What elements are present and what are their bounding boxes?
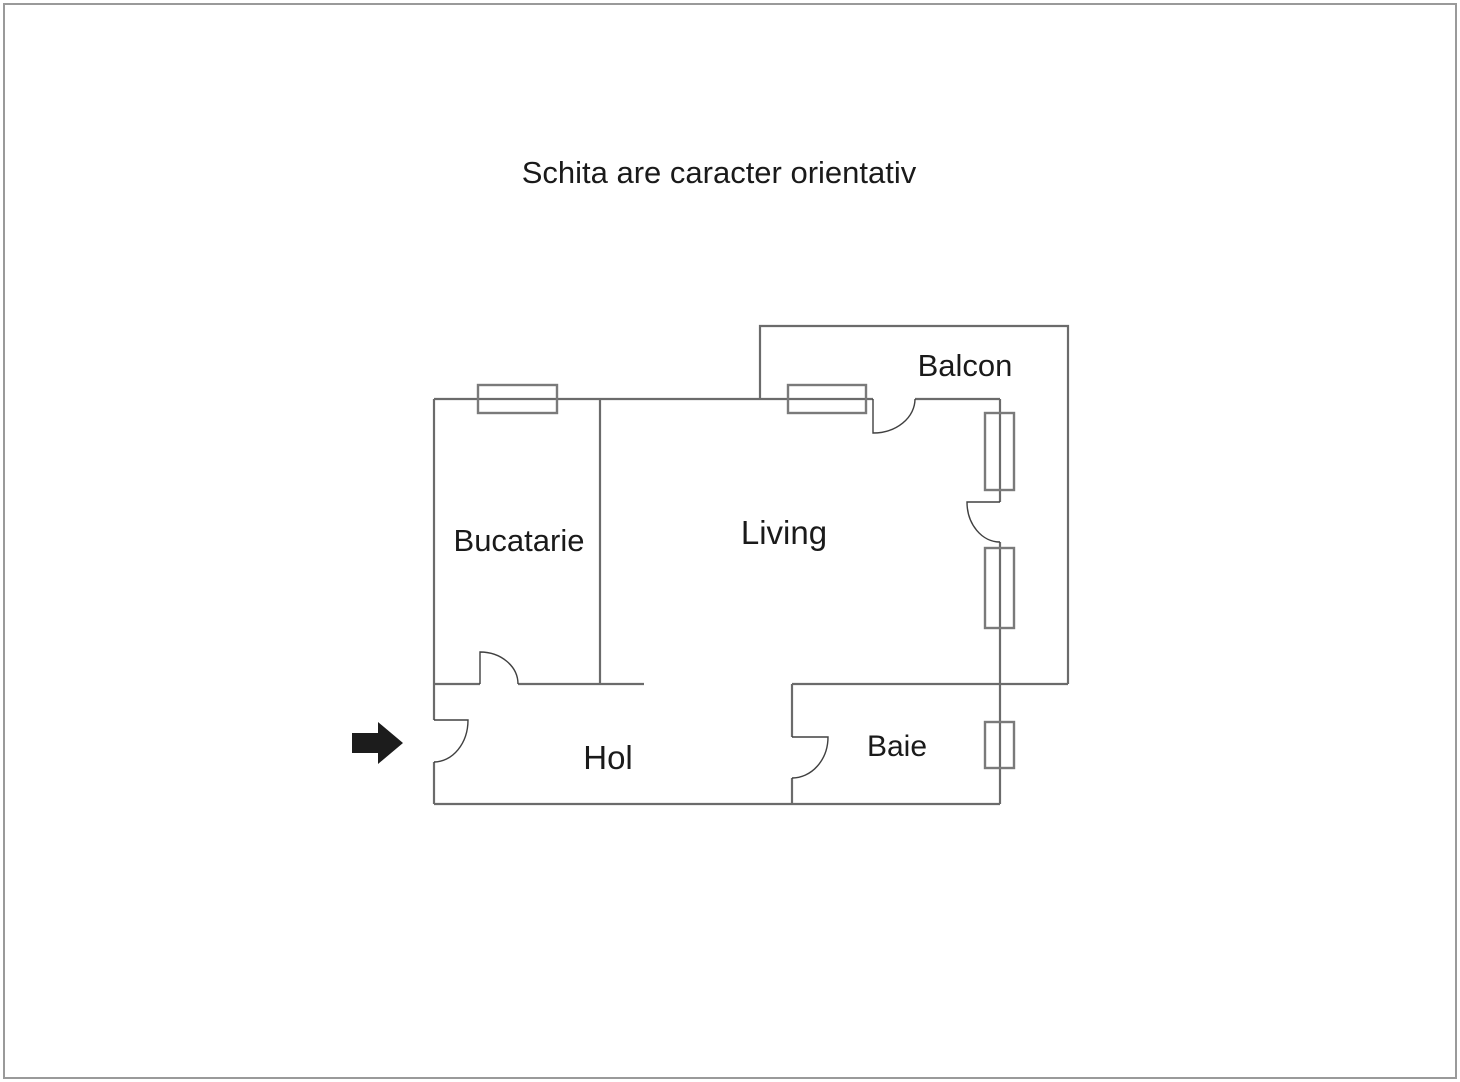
room-label-bucatarie: Bucatarie (454, 523, 585, 558)
living-right-upper-window-icon (985, 413, 1014, 490)
window-symbols (478, 385, 1014, 768)
living-top-window-icon (788, 385, 866, 413)
balcony-door-arc (873, 399, 915, 433)
floor-plan-page: Schita are caracter orientativ Bucatarie (0, 0, 1460, 1082)
entrance-arrow-icon (352, 722, 403, 764)
room-label-living: Living (741, 514, 827, 551)
room-label-hol: Hol (583, 739, 633, 776)
floor-plan-canvas: Schita are caracter orientativ Bucatarie (0, 0, 1460, 1082)
door-symbols (434, 399, 1000, 778)
kitchen-window-icon (478, 385, 557, 413)
kitchen-door-arc (480, 652, 518, 684)
bathroom-door-arc (792, 737, 828, 778)
bathroom-window-icon (985, 722, 1014, 768)
entrance-door-arc (434, 720, 468, 762)
room-label-baie: Baie (867, 730, 927, 763)
living-right-lower-window-icon (985, 548, 1014, 628)
living-side-door-arc (967, 502, 1000, 542)
room-label-balcon: Balcon (918, 348, 1013, 383)
page-title: Schita are caracter orientativ (522, 155, 917, 190)
